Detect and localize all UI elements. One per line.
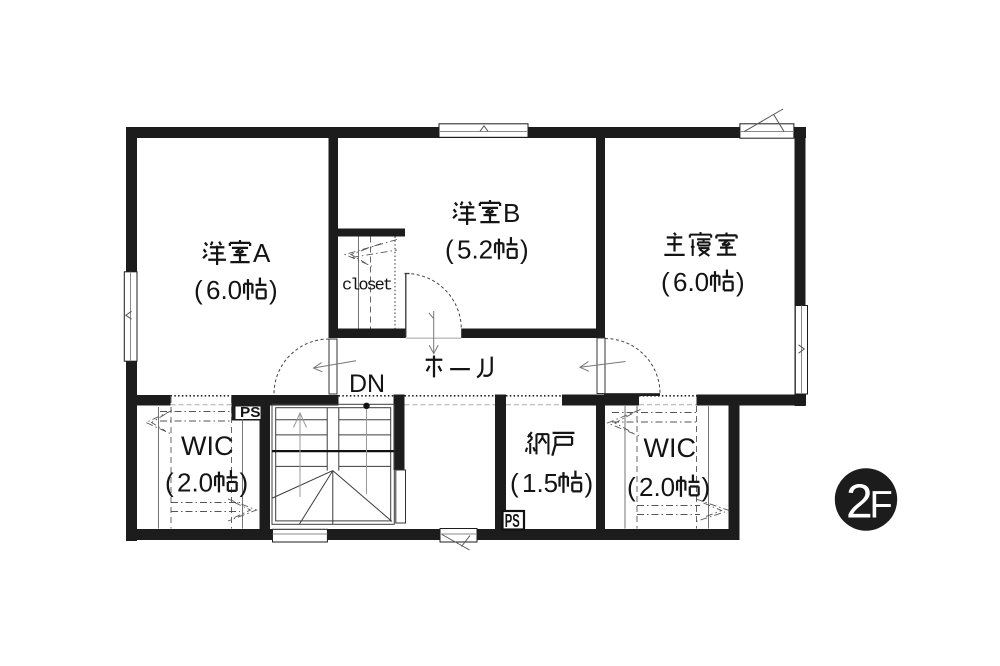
svg-text:(: ( [165, 467, 174, 497]
svg-text:): ) [240, 467, 249, 497]
svg-text:): ) [585, 468, 594, 498]
svg-text:PS: PS [505, 510, 520, 531]
svg-text:): ) [269, 275, 278, 305]
svg-text:F: F [870, 485, 893, 527]
svg-text:2.0: 2.0 [639, 472, 675, 502]
svg-text:6.0: 6.0 [673, 267, 709, 297]
svg-text:(: ( [445, 235, 454, 265]
svg-text:6.0: 6.0 [206, 275, 242, 305]
svg-text:(: ( [661, 267, 670, 297]
svg-text:): ) [520, 235, 529, 265]
svg-text:): ) [736, 267, 745, 297]
svg-text:(: ( [194, 275, 203, 305]
svg-text:5.2: 5.2 [457, 235, 493, 265]
svg-text:A: A [253, 238, 271, 268]
svg-text:B: B [503, 198, 520, 228]
svg-text:2.0: 2.0 [177, 467, 213, 497]
svg-text:closet: closet [342, 277, 393, 296]
svg-text:): ) [702, 472, 711, 502]
svg-text:WIC: WIC [181, 431, 233, 461]
svg-text:(: ( [510, 468, 519, 498]
svg-text:(: ( [627, 472, 636, 502]
svg-text:DN: DN [349, 370, 385, 398]
svg-text:1.5: 1.5 [522, 468, 558, 498]
svg-text:WIC: WIC [644, 433, 696, 463]
svg-text:PS: PS [240, 405, 261, 421]
